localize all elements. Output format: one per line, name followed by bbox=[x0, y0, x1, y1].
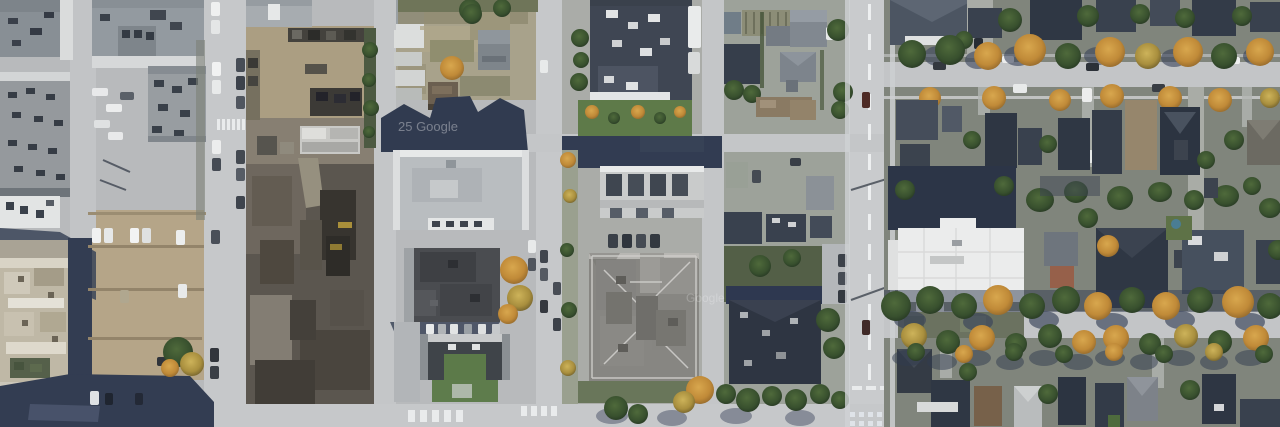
svg-text:25 Google: 25 Google bbox=[398, 119, 458, 134]
svg-text:Google: Google bbox=[686, 291, 725, 305]
